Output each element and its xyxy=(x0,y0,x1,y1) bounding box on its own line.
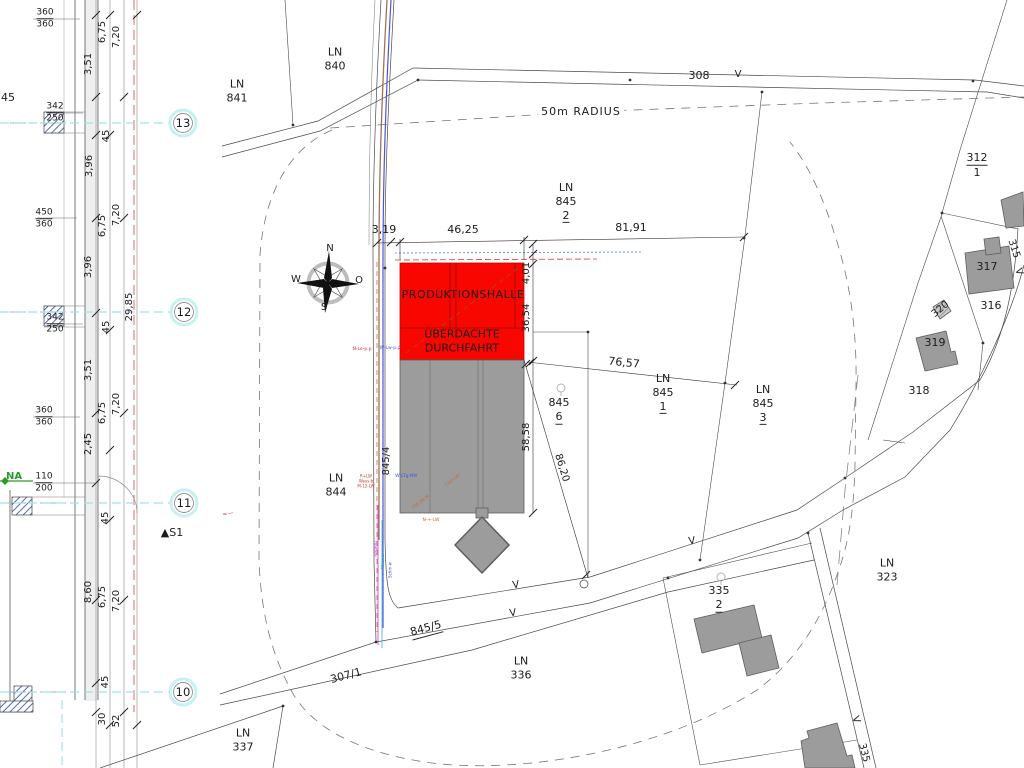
marker-s1: ▲S1 xyxy=(161,526,183,540)
compass-label-s-text: S xyxy=(321,302,327,315)
dim-45-c: 45 xyxy=(100,512,113,525)
dim-3-51-b-text: 3,51 xyxy=(83,359,96,381)
label-845-4: 845/4 xyxy=(381,447,394,476)
dim-3-96-b: 3,96 xyxy=(83,256,96,278)
label-ueberdachte-durchfahrt-text: DURCHFAHRT xyxy=(425,341,499,355)
site-plan: LN841LN84050m RADIUS308VLN845281,913,194… xyxy=(0,0,1024,768)
dim-7-20-b: 7,20 xyxy=(111,204,124,226)
dim-7-20-c: 7,20 xyxy=(111,393,124,415)
dim-8-60: 8,60 xyxy=(83,581,96,603)
label-ln-844: LN844 xyxy=(326,471,347,499)
label-ueberdachte-durchfahrt: ÜBERDACHTEDURCHFAHRT xyxy=(424,327,499,355)
label-335-2: 3352 xyxy=(709,584,730,613)
dim-6-75-a: 6,75 xyxy=(97,21,110,43)
dim-3-19-text: 3,19 xyxy=(372,223,397,237)
window-dim-6-text: 110 xyxy=(35,471,52,483)
dim-7-20-b-text: 7,20 xyxy=(111,204,124,226)
plan-labels: LN841LN84050m RADIUS308VLN845281,913,194… xyxy=(0,0,1024,768)
grid-label-10-text: 10 xyxy=(176,685,191,699)
label-316-text: 316 xyxy=(981,299,1002,313)
dim-46-25: 46,25 xyxy=(447,223,479,237)
window-dim-2-text: 250 xyxy=(46,114,63,125)
grid-label-11-text: 11 xyxy=(177,496,192,510)
marker-v-1: V xyxy=(512,579,521,592)
window-dim-5-text: 360 xyxy=(35,405,52,417)
utility-note-1: N-Le-p.p xyxy=(353,347,372,353)
dim-30-text: 30 xyxy=(97,713,110,726)
dim-4-01: 4,01 xyxy=(521,262,534,284)
window-dim-3: 450360 xyxy=(35,207,52,231)
dim-29-85: 29,85 xyxy=(124,293,137,322)
compass-label-o: O xyxy=(355,275,363,288)
dim-76-57: 76,57 xyxy=(608,355,641,372)
compass-label-n-text: N xyxy=(326,243,333,256)
label-ln-323: LN323 xyxy=(877,556,898,584)
label-ln-845-3-text: 845 xyxy=(753,397,774,411)
marker-v-308-text: V xyxy=(735,69,742,82)
dim-36-54: 36,54 xyxy=(521,304,534,333)
label-ln-841-text: 841 xyxy=(227,91,248,105)
utility-note-4-text: W-LTg-NN xyxy=(395,474,417,480)
dim-3-96-a-text: 3,96 xyxy=(84,155,97,177)
label-312-1: 3121 xyxy=(967,151,988,180)
label-ln-844-text: 844 xyxy=(326,485,347,499)
utility-note-8: 750,26 M xyxy=(411,494,431,511)
dim-30: 30 xyxy=(97,713,110,726)
dim-86-20-text: 86,20 xyxy=(551,452,571,483)
label-building-317: 317 xyxy=(977,260,998,274)
dim-36-54-text: 36,54 xyxy=(521,304,534,333)
label-road-315-text: 315 xyxy=(1004,238,1022,260)
label-ln-845-1: LN8451 xyxy=(653,372,674,414)
marker-v-4: V xyxy=(848,715,862,726)
label-312-1-text: 312 xyxy=(967,151,988,166)
dim-2-45: 2,45 xyxy=(83,433,96,455)
label-road-308: 308 xyxy=(689,69,710,83)
window-dim-3-text: 450 xyxy=(35,207,52,219)
label-312-1-text: 1 xyxy=(974,166,981,180)
dim-45-b: 45 xyxy=(101,321,114,334)
dim-58-58-text: 58,58 xyxy=(521,423,534,452)
label-50m-radius-text: 50m RADIUS xyxy=(541,105,621,119)
marker-v-3: V xyxy=(688,535,697,548)
window-dim-1: 360360 xyxy=(36,7,53,31)
marker-v-315: V xyxy=(1011,267,1024,277)
window-dim-1-text: 360 xyxy=(36,7,53,19)
label-845-4-text: 845/4 xyxy=(381,447,394,476)
label-318-text: 318 xyxy=(909,384,930,398)
label-na: NA xyxy=(6,471,22,484)
label-ln-845-3-text: 3 xyxy=(760,410,767,425)
dim-76-57-text: 76,57 xyxy=(608,355,641,372)
utility-note-4: W-LTg-NN xyxy=(395,474,417,480)
dim-6-75-b-text: 6,75 xyxy=(97,215,110,237)
window-dim-5-text: 360 xyxy=(35,418,52,429)
label-building-320: 320 xyxy=(930,299,953,321)
label-ln-840: LN840 xyxy=(325,45,346,73)
marker-s1-text: ▲S1 xyxy=(161,526,183,540)
label-road-335-text: 335 xyxy=(855,742,872,764)
grid-label-12-text: 12 xyxy=(177,305,192,319)
label-318: 318 xyxy=(909,384,930,398)
marker-v-1-text: V xyxy=(512,579,521,592)
utility-note-6-text: Wasser xyxy=(381,553,387,569)
utility-note-3-text: M-12-LW xyxy=(357,484,374,489)
dim-4-01-text: 4,01 xyxy=(521,262,534,284)
dim-7-20-a-text: 7,20 xyxy=(111,26,124,48)
marker-v-3-text: V xyxy=(688,535,697,548)
compass-label-w: W xyxy=(291,274,301,287)
dim-8-60-text: 8,60 xyxy=(83,581,96,603)
label-845-5: 845/5 xyxy=(409,618,443,640)
compass-label-n: N xyxy=(326,243,333,256)
label-ln-323-text: LN xyxy=(880,556,894,570)
grid-label-10: 10 xyxy=(176,685,191,699)
dim-3-51-a: 3,51 xyxy=(83,53,96,75)
compass-label-s: S xyxy=(321,302,327,315)
label-ln-840-text: LN xyxy=(328,45,342,59)
grid-label-13: 13 xyxy=(176,116,191,130)
marker-v-2: V xyxy=(509,607,518,620)
marker-v-308: V xyxy=(735,69,742,82)
dim-58-58: 58,58 xyxy=(521,423,534,452)
dim-86-20: 86,20 xyxy=(551,452,571,483)
dim-45-d-text: 45 xyxy=(100,676,113,689)
dim-6-75-c: 6,75 xyxy=(97,402,110,424)
dim-45-d: 45 xyxy=(100,676,113,689)
utility-note-2: W-Lw-p.p xyxy=(380,346,401,352)
dim-45-cut: 45 xyxy=(1,91,15,105)
label-ln-337-text: 337 xyxy=(233,740,254,754)
label-ln-845-2-text: 2 xyxy=(563,208,570,223)
utility-note-7-text: Schm-w xyxy=(388,562,393,578)
label-ln-323-text: 323 xyxy=(877,570,898,584)
utility-note-5-text: Regenl xyxy=(374,541,380,556)
label-ln-845-2-text: 845 xyxy=(556,195,577,209)
label-ln-845-1-text: LN xyxy=(656,372,670,386)
label-building-320-text: 320 xyxy=(930,299,953,321)
label-produktionshalle-text: PRODUKTIONSHALLE xyxy=(402,288,525,302)
dim-7-20-d: 7,20 xyxy=(111,590,124,612)
utility-note-5: Regenl xyxy=(374,541,380,556)
window-dim-1-text: 360 xyxy=(36,20,53,31)
dim-3-19: 3,19 xyxy=(372,223,397,237)
window-dim-2-text: 342 xyxy=(46,101,63,113)
compass-label-w-text: W xyxy=(291,274,301,287)
dim-3-51-b: 3,51 xyxy=(83,359,96,381)
label-ln-841: LN841 xyxy=(227,77,248,105)
dim-45-cut-text: 45 xyxy=(1,91,15,105)
dim-81-91: 81,91 xyxy=(615,221,647,235)
label-845-6-text: 845 xyxy=(549,396,570,410)
window-dim-6-text: 200 xyxy=(35,484,52,495)
utility-note-7: Schm-w xyxy=(388,562,393,578)
window-dim-6: 110200 xyxy=(35,471,52,495)
window-dim-4-text: 342 xyxy=(46,312,63,324)
dim-45-a: 45 xyxy=(101,130,114,143)
label-ln-841-text: LN xyxy=(230,77,244,91)
dim-2-45-text: 2,45 xyxy=(83,433,96,455)
utility-note-8-text: 750,26 M xyxy=(411,494,431,511)
utility-note-3: R+LWWass-bM-12-LW xyxy=(357,474,374,489)
dim-6-75-c-text: 6,75 xyxy=(97,402,110,424)
label-ln-336-text: LN xyxy=(514,654,528,668)
dim-45-c-text: 45 xyxy=(100,512,113,525)
label-produktionshalle: PRODUKTIONSHALLE xyxy=(402,288,525,302)
label-road-335: 335 xyxy=(855,742,872,764)
label-building-319: 319 xyxy=(925,336,946,350)
dim-3-51-a-text: 3,51 xyxy=(83,53,96,75)
label-307-1-text: 307/1 xyxy=(329,665,363,686)
label-ln-845-3: LN8453 xyxy=(753,383,774,425)
dim-6-75-b: 6,75 xyxy=(97,215,110,237)
utility-note-1-text: N-Le-p.p xyxy=(353,347,372,353)
marker-v-4-text: V xyxy=(848,715,862,726)
dim-7-20-a: 7,20 xyxy=(111,26,124,48)
dim-6-75-d: 6,75 xyxy=(97,586,110,608)
dim-46-25-text: 46,25 xyxy=(447,223,479,237)
window-dim-3-text: 360 xyxy=(35,220,52,231)
dim-52: 52 xyxy=(111,715,124,728)
label-ln-845-1-text: 1 xyxy=(660,399,667,414)
dim-3-96-a: 3,96 xyxy=(84,155,97,177)
marker-v-315-text: V xyxy=(1011,267,1024,277)
label-ln-845-2-text: LN xyxy=(559,181,573,195)
label-316: 316 xyxy=(981,299,1002,313)
utility-note-10: 7,50+LW xyxy=(443,472,460,487)
window-dim-2: 342250 xyxy=(46,101,63,125)
label-ln-337: LN337 xyxy=(233,726,254,754)
dim-52-text: 52 xyxy=(111,715,124,728)
dim-29-85-text: 29,85 xyxy=(124,293,137,322)
grid-label-13-text: 13 xyxy=(176,116,191,130)
window-dim-4-text: 250 xyxy=(46,325,63,336)
label-road-315: 315 xyxy=(1004,238,1022,260)
label-ln-336: LN336 xyxy=(511,654,532,682)
dim-45-a-text: 45 xyxy=(101,130,114,143)
label-road-308-text: 308 xyxy=(689,69,710,83)
sketch-mark: ≈— xyxy=(222,509,234,518)
label-ln-845-2: LN8452 xyxy=(556,181,577,223)
label-building-319-text: 319 xyxy=(925,336,946,350)
utility-note-2-text: W-Lw-p.p xyxy=(380,346,401,352)
label-307-1: 307/1 xyxy=(329,665,363,686)
dim-6-75-d-text: 6,75 xyxy=(97,586,110,608)
label-50m-radius: 50m RADIUS xyxy=(538,105,624,119)
label-building-317-text: 317 xyxy=(977,260,998,274)
utility-note-6: Wasser xyxy=(381,553,387,569)
label-ln-337-text: LN xyxy=(236,726,250,740)
label-ln-845-3-text: LN xyxy=(756,383,770,397)
label-na-text: NA xyxy=(6,471,22,484)
label-ln-336-text: 336 xyxy=(511,668,532,682)
utility-note-9: N-+-LW xyxy=(423,518,440,524)
dim-81-91-text: 81,91 xyxy=(615,221,647,235)
label-845-5-text: 845/5 xyxy=(409,618,443,640)
label-845-6-text: 6 xyxy=(556,410,563,425)
dim-7-20-d-text: 7,20 xyxy=(111,590,124,612)
dim-45-b-text: 45 xyxy=(101,321,114,334)
utility-note-9-text: N-+-LW xyxy=(423,518,440,524)
label-ln-844-text: LN xyxy=(329,471,343,485)
window-dim-4: 342250 xyxy=(46,312,63,336)
label-335-2-text: 335 xyxy=(709,584,730,598)
compass-label-o-text: O xyxy=(355,275,363,288)
sketch-mark-text: ≈— xyxy=(222,509,234,518)
window-dim-5: 360360 xyxy=(35,405,52,429)
label-ln-840-text: 840 xyxy=(325,59,346,73)
grid-label-12: 12 xyxy=(177,305,192,319)
dim-6-75-a-text: 6,75 xyxy=(97,21,110,43)
marker-v-2-text: V xyxy=(509,607,518,620)
label-ln-845-1-text: 845 xyxy=(653,386,674,400)
label-335-2-text: 2 xyxy=(716,598,723,613)
grid-label-11: 11 xyxy=(177,496,192,510)
utility-note-10-text: 7,50+LW xyxy=(443,472,460,487)
dim-7-20-c-text: 7,20 xyxy=(111,393,124,415)
label-845-6: 8456 xyxy=(549,396,570,425)
dim-3-96-b-text: 3,96 xyxy=(83,256,96,278)
label-ueberdachte-durchfahrt-text: ÜBERDACHTE xyxy=(424,327,499,341)
